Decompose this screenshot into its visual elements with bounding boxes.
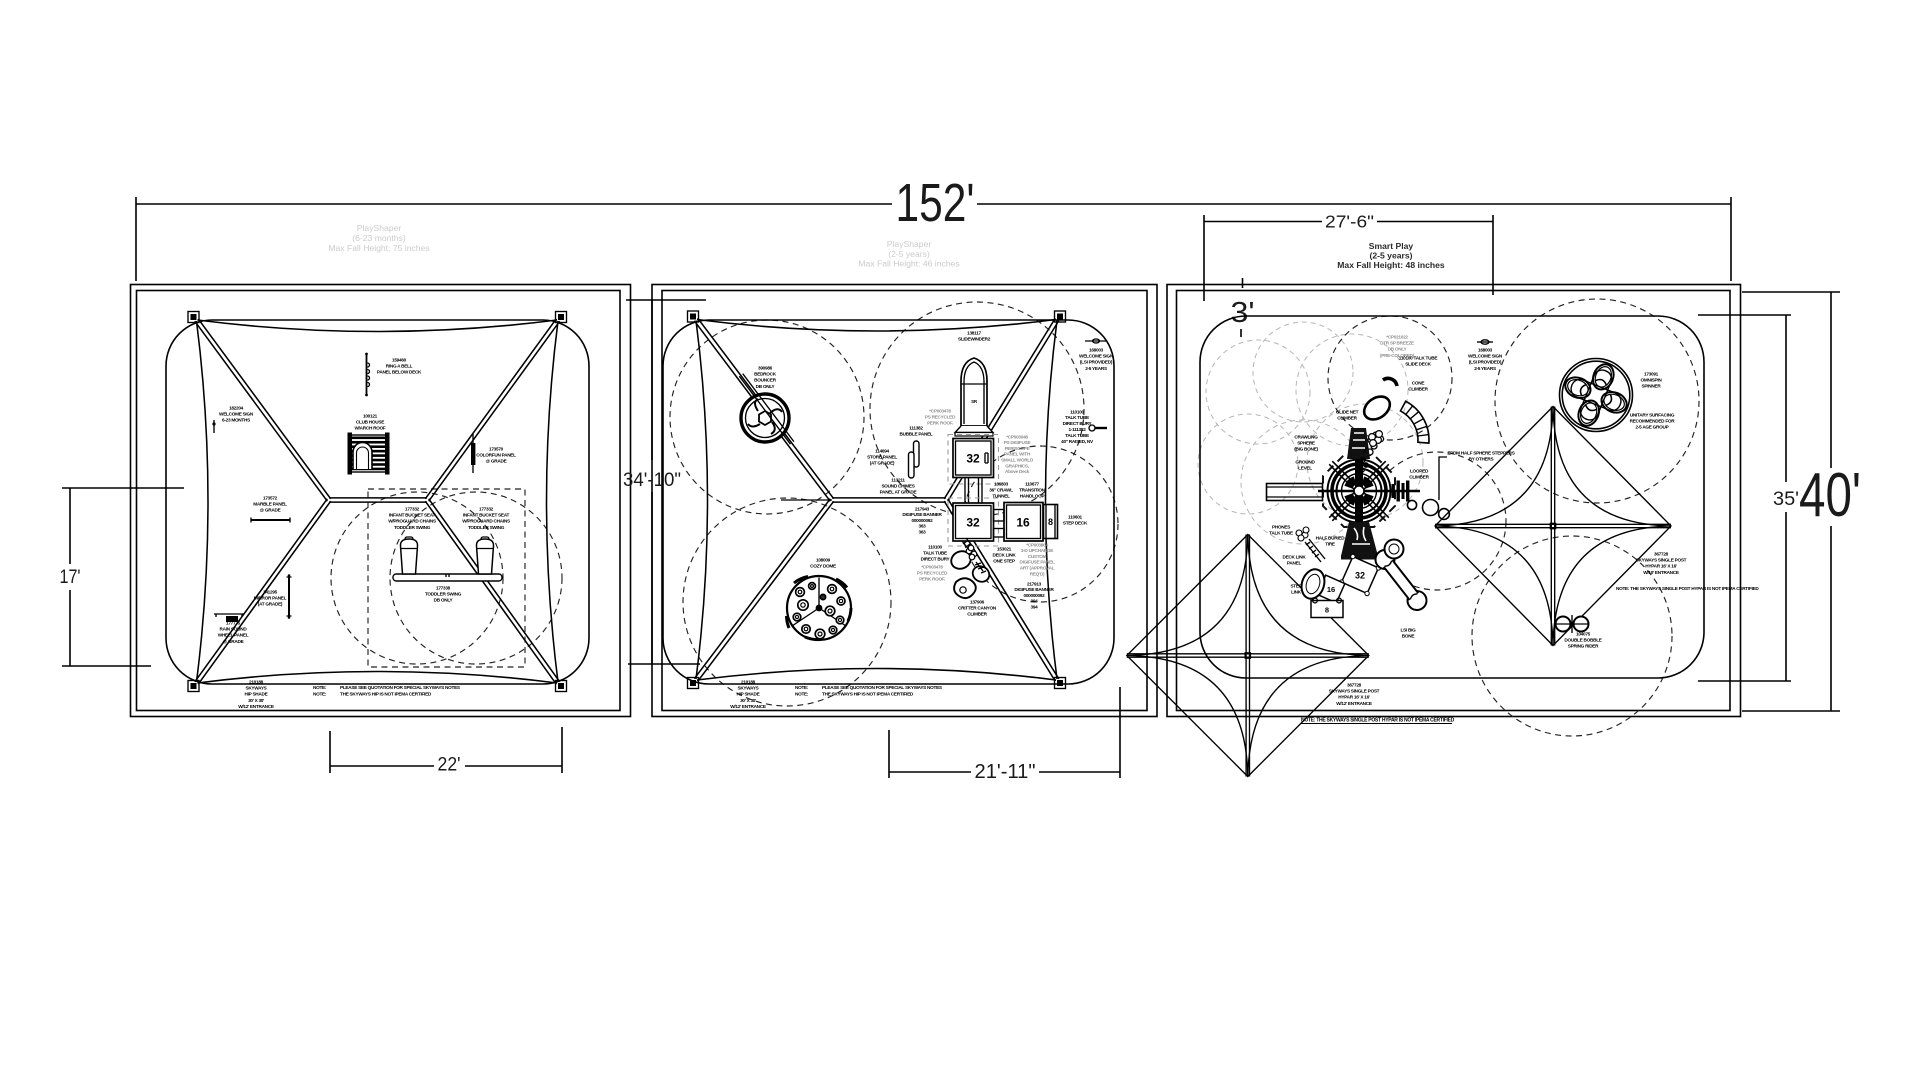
svg-text:Max Fall Height: 46 inches: Max Fall Height: 46 inches: [858, 259, 959, 269]
svg-text:CLIMBER: CLIMBER: [1337, 416, 1357, 421]
svg-text:21'-11": 21'-11": [975, 761, 1036, 783]
svg-text:217943: 217943: [915, 506, 930, 511]
svg-text:NOTE:: NOTE:: [313, 685, 327, 690]
svg-text:THE SKYWAYS HIP IS NOT IPEMA C: THE SKYWAYS HIP IS NOT IPEMA CERTIFIED: [340, 692, 432, 697]
svg-text:173570: 173570: [489, 446, 504, 451]
svg-text:(2-5 years): (2-5 years): [888, 249, 930, 259]
svg-text:DB ONLY: DB ONLY: [756, 384, 776, 389]
svg-text:394: 394: [1031, 599, 1039, 604]
svg-text:PERK ROOF.: PERK ROOF.: [919, 577, 945, 582]
svg-text:32: 32: [1355, 571, 1365, 581]
svg-text:177338: 177338: [436, 585, 451, 590]
svg-text:COZY DOME: COZY DOME: [810, 564, 836, 569]
svg-text:NOTE:: NOTE:: [313, 692, 327, 697]
svg-text:HALF BURIED: HALF BURIED: [1316, 535, 1346, 540]
svg-text:HANDLOOP: HANDLOOP: [1020, 494, 1045, 499]
svg-text:177775: 177775: [226, 620, 241, 625]
svg-text:Above Deck: Above Deck: [1005, 469, 1030, 474]
svg-text:W/12' ENTRANCE: W/12' ENTRANCE: [730, 704, 766, 709]
svg-text:TALK TUBE: TALK TUBE: [1065, 415, 1089, 420]
svg-text:2-5 YEARS: 2-5 YEARS: [1085, 366, 1107, 371]
svg-text:SLIDEWINDER2: SLIDEWINDER2: [958, 337, 991, 342]
svg-text:110100: 110100: [1070, 409, 1084, 414]
svg-text:Smart Play: Smart Play: [1369, 241, 1414, 251]
svg-text:SKYWAYS SINGLE POST: SKYWAYS SINGLE POST: [1329, 689, 1380, 694]
svg-text:WELCOME SIGN: WELCOME SIGN: [219, 412, 254, 417]
svg-text:TODDLER SWING: TODDLER SWING: [468, 525, 505, 530]
svg-text:W/PROGUARD CHAINS: W/PROGUARD CHAINS: [388, 519, 436, 524]
svg-text:30' X 30': 30' X 30': [248, 698, 264, 703]
svg-text:110100: 110100: [928, 544, 942, 549]
svg-text:CLUB HOUSE: CLUB HOUSE: [356, 420, 384, 425]
svg-text:SLIDE DECK: SLIDE DECK: [1405, 362, 1431, 367]
svg-text:STEP DECK: STEP DECK: [1063, 521, 1088, 526]
svg-text:32: 32: [966, 452, 980, 466]
svg-text:PlayShaper: PlayShaper: [887, 239, 932, 249]
svg-text:OMNISPIN: OMNISPIN: [1641, 378, 1663, 383]
svg-text:108009: 108009: [816, 557, 831, 562]
svg-text:000000092: 000000092: [1024, 593, 1046, 598]
svg-text:DECK LINK: DECK LINK: [992, 553, 1016, 558]
svg-text:TRANSITION: TRANSITION: [1019, 488, 1046, 493]
svg-text:168003: 168003: [1089, 347, 1104, 352]
svg-text:HYPAR 16' X 16': HYPAR 16' X 16': [1645, 564, 1677, 569]
svg-text:DIGIFUSE BANNER: DIGIFUSE BANNER: [902, 512, 942, 517]
svg-text:363: 363: [919, 524, 927, 529]
svg-text:210188: 210188: [741, 679, 756, 684]
svg-text:PANEL AT GRADE: PANEL AT GRADE: [880, 490, 917, 495]
svg-text:ART (APPROVAL: ART (APPROVAL: [1020, 566, 1055, 571]
svg-text:BEDROCK: BEDROCK: [754, 372, 777, 377]
svg-text:217913: 217913: [1027, 581, 1042, 586]
svg-text:SOUND CHIMES: SOUND CHIMES: [881, 484, 914, 489]
svg-text:363: 363: [919, 530, 927, 535]
svg-text:CUSTOM: CUSTOM: [1028, 554, 1047, 559]
svg-text:@ GRADE: @ GRADE: [486, 459, 507, 464]
svg-text:6-23 MONTHS: 6-23 MONTHS: [222, 418, 250, 423]
svg-text:*CP003478: *CP003478: [921, 564, 943, 569]
svg-text:PlayShaper: PlayShaper: [357, 223, 402, 233]
svg-text:(6-23 months): (6-23 months): [352, 233, 406, 243]
svg-text:40" RAISED, NV: 40" RAISED, NV: [1061, 439, 1094, 444]
svg-text:30' X 30': 30' X 30': [740, 698, 756, 703]
svg-text:W/10' ENTRANCE: W/10' ENTRANCE: [1643, 570, 1679, 575]
svg-text:CLIMBER: CLIMBER: [1409, 475, 1429, 480]
svg-text:WHEEL PANEL: WHEEL PANEL: [218, 633, 249, 638]
svg-text:RAIN SOUND: RAIN SOUND: [220, 627, 248, 632]
svg-text:110100 TALK TUBE: 110100 TALK TUBE: [1399, 355, 1438, 360]
svg-text:LEVEL: LEVEL: [1298, 466, 1312, 471]
svg-text:2-5 YEARS: 2-5 YEARS: [1474, 366, 1496, 371]
svg-text:DECK LINK: DECK LINK: [1282, 554, 1306, 559]
svg-text:177332: 177332: [405, 506, 420, 511]
svg-text:SPHERE: SPHERE: [1297, 441, 1315, 446]
svg-text:PLEASE SEE QUOTATION FOR SPECI: PLEASE SEE QUOTATION FOR SPECIAL SKYWAYS…: [340, 685, 460, 690]
svg-text:W/PROGUARD CHAINS: W/PROGUARD CHAINS: [462, 519, 510, 524]
svg-text:PANEL: PANEL: [1287, 561, 1302, 566]
svg-text:168003: 168003: [1478, 347, 1493, 352]
svg-text:40': 40': [1799, 461, 1861, 530]
svg-text:@ GRADE: @ GRADE: [223, 639, 244, 644]
svg-text:390986: 390986: [758, 365, 773, 370]
svg-text:(AT GRADE): (AT GRADE): [258, 602, 283, 607]
svg-text:DB ONLY: DB ONLY: [434, 598, 454, 603]
svg-text:136803: 136803: [994, 481, 1009, 486]
svg-text:138117: 138117: [967, 330, 981, 335]
svg-text:W/ARCH ROOF: W/ARCH ROOF: [354, 426, 385, 431]
svg-text:2-5 AGE GROUP: 2-5 AGE GROUP: [1636, 425, 1669, 430]
svg-text:DIRECT BURY: DIRECT BURY: [921, 557, 951, 562]
svg-text:SPINNER: SPINNER: [1642, 384, 1662, 389]
svg-text:153021: 153021: [997, 546, 1012, 551]
svg-text:GRAPHICS,: GRAPHICS,: [1005, 463, 1029, 468]
svg-text:NOTE: THE SKYWAYS SINGLE POST: NOTE: THE SKYWAYS SINGLE POST HYPAR IS N…: [1301, 718, 1455, 724]
svg-text:HIP SHADE: HIP SHADE: [737, 692, 760, 697]
svg-text:BY OTHERS: BY OTHERS: [1469, 457, 1494, 462]
svg-text:17': 17': [60, 567, 81, 588]
svg-text:LSI BIG: LSI BIG: [1401, 627, 1417, 632]
svg-text:TALK TUBE: TALK TUBE: [1269, 531, 1293, 536]
svg-text:114694: 114694: [875, 448, 889, 453]
svg-text:(AT GRADE): (AT GRADE): [870, 461, 895, 466]
svg-text:CRITTER CANYON: CRITTER CANYON: [958, 606, 997, 611]
svg-text:(LSI PROVIDED): (LSI PROVIDED): [1080, 360, 1113, 365]
svg-text:HYPAR 16' X 16': HYPAR 16' X 16': [1338, 695, 1370, 700]
svg-text:3-D UPCHARGE: 3-D UPCHARGE: [1021, 548, 1053, 553]
svg-text:PERK ROOF.: PERK ROOF.: [927, 421, 953, 426]
svg-text:BOUNCER: BOUNCER: [754, 378, 777, 383]
svg-text:182204: 182204: [229, 405, 244, 410]
svg-text:*CP021022: *CP021022: [1386, 334, 1408, 339]
svg-text:@ GRADE: @ GRADE: [260, 508, 281, 513]
svg-text:36" CRAWL: 36" CRAWL: [989, 488, 1013, 493]
svg-text:TODDLER SWING: TODDLER SWING: [425, 592, 462, 597]
svg-text:UNITARY SURFACING: UNITARY SURFACING: [1630, 412, 1675, 417]
svg-text:16: 16: [1327, 585, 1335, 594]
svg-text:MARBLE PANEL: MARBLE PANEL: [253, 502, 287, 507]
svg-text:GROUND: GROUND: [1295, 459, 1315, 464]
svg-text:PS DIGIFUSE: PS DIGIFUSE: [1004, 440, 1031, 445]
svg-text:GLIDE NET: GLIDE NET: [1336, 409, 1359, 414]
svg-text:*CP003478: *CP003478: [929, 408, 951, 413]
svg-text:8: 8: [1325, 606, 1329, 615]
svg-text:WELCOME SIGN: WELCOME SIGN: [1468, 354, 1503, 359]
svg-text:*CP003048: *CP003048: [1006, 434, 1028, 439]
svg-text:16: 16: [1016, 516, 1030, 530]
svg-text:DB ONLY: DB ONLY: [1388, 347, 1408, 352]
svg-text:100121: 100121: [363, 413, 378, 418]
svg-text:STORE PANEL: STORE PANEL: [867, 455, 897, 460]
svg-text:35': 35': [1773, 489, 1799, 510]
svg-text:TODDLER SWING: TODDLER SWING: [394, 525, 431, 530]
svg-text:000000092: 000000092: [912, 518, 934, 523]
svg-text:TALK TUBE: TALK TUBE: [923, 551, 947, 556]
svg-text:DIGIFUSE BANNER: DIGIFUSE BANNER: [1014, 587, 1054, 592]
svg-text:34'-10": 34'-10": [623, 470, 681, 491]
svg-text:SKYWAYS SINGLE POST: SKYWAYS SINGLE POST: [1636, 558, 1687, 563]
svg-text:SKYWAYS: SKYWAYS: [245, 686, 266, 691]
svg-text:INFANT BUCKET SEAT: INFANT BUCKET SEAT: [389, 513, 436, 518]
svg-text:CLIMBER: CLIMBER: [967, 612, 987, 617]
svg-text:PS RECYCLED: PS RECYCLED: [917, 571, 948, 576]
svg-text:PS RECYCLED: PS RECYCLED: [925, 415, 956, 420]
svg-text:STEP: STEP: [1290, 583, 1301, 588]
svg-text:COLORFUN PANEL: COLORFUN PANEL: [476, 453, 516, 458]
svg-text:367728: 367728: [1654, 551, 1669, 556]
svg-text:LOOPED: LOOPED: [1410, 468, 1429, 473]
svg-text:NOTE:: NOTE:: [795, 692, 809, 697]
svg-text:LINK: LINK: [1291, 590, 1302, 595]
svg-text:DOUBLE BOBBLE: DOUBLE BOBBLE: [1564, 638, 1601, 643]
svg-text:PERISCOPE: PERISCOPE: [1005, 446, 1030, 451]
svg-text:W/12' ENTRANCE: W/12' ENTRANCE: [1336, 701, 1372, 706]
svg-text:ONE STEP: ONE STEP: [993, 559, 1015, 564]
svg-text:SMALL WORLD: SMALL WORLD: [1001, 458, 1034, 463]
svg-text:CONE: CONE: [1412, 380, 1425, 385]
svg-text:DIRECT BURY: DIRECT BURY: [1063, 421, 1093, 426]
svg-text:PANEL WITH: PANEL WITH: [1004, 452, 1031, 457]
svg-text:111382: 111382: [909, 425, 923, 430]
svg-text:MIRROR PANEL: MIRROR PANEL: [254, 596, 287, 601]
svg-text:PLEASE SEE QUOTATION FOR SPECI: PLEASE SEE QUOTATION FOR SPECIAL SKYWAYS…: [822, 685, 942, 690]
svg-text:CRAWLING: CRAWLING: [1294, 434, 1318, 439]
svg-text:REQ'D): REQ'D): [1030, 571, 1045, 576]
svg-text:DTR SP BREEZE: DTR SP BREEZE: [1380, 341, 1414, 346]
svg-text:32: 32: [966, 516, 980, 530]
svg-text:TALK TUBE: TALK TUBE: [1065, 433, 1089, 438]
svg-text:NOTE: THE SKYWAYS SINGLE POST: NOTE: THE SKYWAYS SINGLE POST HYPAR IS N…: [1616, 586, 1759, 591]
svg-text:177332: 177332: [479, 506, 494, 511]
svg-text:TUNNEL: TUNNEL: [992, 494, 1010, 499]
svg-text:137906: 137906: [970, 599, 985, 604]
svg-text:EPDM HALF SPHERE STEPPERS: EPDM HALF SPHERE STEPPERS: [1447, 450, 1514, 455]
svg-text:113211: 113211: [891, 477, 905, 482]
svg-text:3': 3': [1231, 297, 1255, 329]
svg-text:WELCOME SIGN: WELCOME SIGN: [1079, 354, 1114, 359]
svg-text:173091: 173091: [1644, 371, 1659, 376]
svg-text:367728: 367728: [1347, 682, 1362, 687]
svg-text:110677: 110677: [1025, 481, 1039, 486]
svg-text:PANEL BELOW DECK: PANEL BELOW DECK: [377, 370, 422, 375]
svg-text:394: 394: [1031, 605, 1039, 610]
svg-text:159460: 159460: [392, 357, 407, 362]
svg-text:173572: 173572: [263, 495, 278, 500]
svg-text:PHONES: PHONES: [1272, 524, 1290, 529]
svg-text:CLIMBER: CLIMBER: [1408, 387, 1428, 392]
svg-text:DIGIFUSE PANEL: DIGIFUSE PANEL: [1019, 560, 1054, 565]
svg-text:INFANT BUCKET SEAT: INFANT BUCKET SEAT: [463, 513, 510, 518]
svg-text:W/12' ENTRANCE: W/12' ENTRANCE: [238, 704, 274, 709]
svg-text:(BIG BONE): (BIG BONE): [1294, 447, 1318, 452]
svg-text:TIRE: TIRE: [1325, 542, 1335, 547]
svg-text:SPRING RIDER: SPRING RIDER: [1568, 644, 1599, 649]
svg-text:BONE: BONE: [1402, 634, 1415, 639]
svg-text:Max Fall Height: 48 inches: Max Fall Height: 48 inches: [1337, 260, 1445, 270]
svg-text:27'-6": 27'-6": [1325, 212, 1374, 232]
svg-text:141295: 141295: [263, 589, 278, 594]
svg-text:(LSI PROVIDED): (LSI PROVIDED): [1469, 360, 1502, 365]
svg-text:BUBBLE PANEL: BUBBLE PANEL: [899, 432, 932, 437]
svg-text:NOTE:: NOTE:: [795, 685, 809, 690]
svg-text:22': 22': [438, 755, 461, 776]
svg-text:HIP SHADE: HIP SHADE: [245, 692, 268, 697]
svg-text:*CP003804: *CP003804: [1026, 542, 1048, 547]
svg-text:Max Fall Height: 75 inches: Max Fall Height: 75 inches: [328, 243, 429, 253]
svg-text:THE SKYWAYS HIP IS NOT IPEMA C: THE SKYWAYS HIP IS NOT IPEMA CERTIFIED: [822, 692, 914, 697]
svg-text:110601: 110601: [1068, 514, 1082, 519]
svg-text:104075: 104075: [1576, 631, 1591, 636]
svg-text:210188: 210188: [249, 679, 264, 684]
svg-text:1-111382: 1-111382: [1068, 427, 1086, 432]
svg-text:8: 8: [1048, 517, 1053, 527]
svg-text:(2-5 years): (2-5 years): [1370, 251, 1413, 261]
svg-text:152': 152': [896, 173, 975, 233]
svg-text:RECOMMENDED FOR: RECOMMENDED FOR: [1630, 419, 1676, 424]
svg-text:SKYWAYS: SKYWAYS: [737, 686, 758, 691]
svg-text:RING A BELL: RING A BELL: [386, 364, 413, 369]
